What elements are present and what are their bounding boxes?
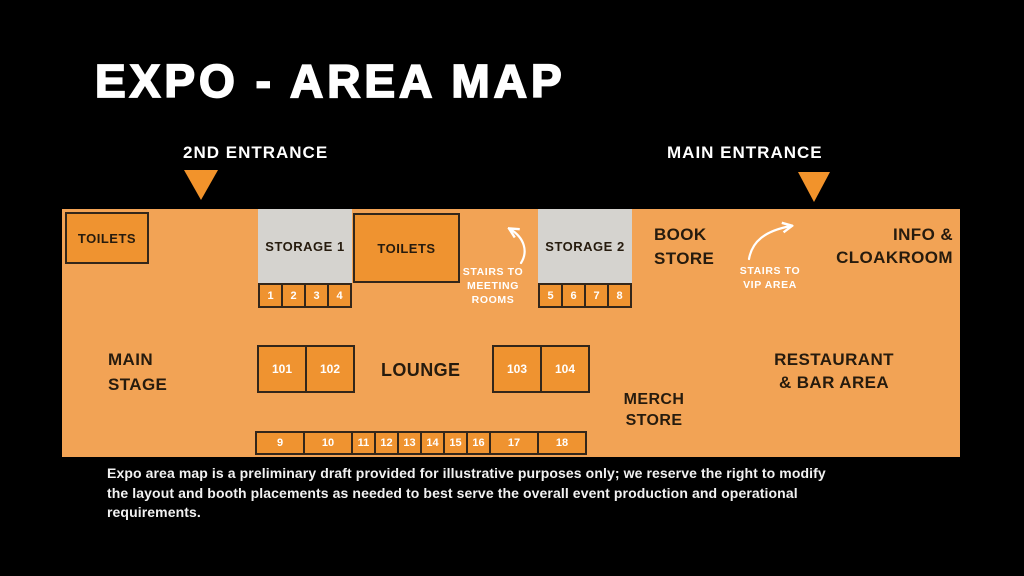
disclaimer-line: Expo area map is a preliminary draft pro…: [107, 464, 867, 484]
booth: 6: [561, 283, 586, 308]
main-entrance-arrow-icon: [798, 172, 830, 202]
booth: 10: [303, 431, 353, 455]
booth: 16: [466, 431, 491, 455]
booth: 104: [540, 345, 590, 393]
info-cloakroom-label: INFO & CLOAKROOM: [836, 223, 953, 269]
expo-floor-map: TOILETS STORAGE 1 TOILETS STORAGE 2 1234…: [62, 209, 960, 457]
booth: 101: [257, 345, 307, 393]
stairs-vip-arrow-icon: [749, 226, 791, 259]
book-store-label: BOOK STORE: [654, 223, 714, 271]
second-entrance-arrow-icon: [184, 170, 218, 200]
lounge-label: LOUNGE: [381, 358, 460, 382]
stairs-vip-label: STAIRS TO VIP AREA: [732, 264, 808, 292]
main-entrance-label: MAIN ENTRANCE: [667, 143, 823, 163]
booth: 4: [327, 283, 352, 308]
room-toilets-mid: TOILETS: [353, 213, 460, 283]
booth-row-101-102: 101102: [257, 345, 355, 393]
booth: 2: [281, 283, 306, 308]
second-entrance-label: 2ND ENTRANCE: [183, 143, 328, 163]
booth-row-1-4: 1234: [258, 283, 352, 308]
booth: 15: [443, 431, 468, 455]
booth: 17: [489, 431, 539, 455]
booth-row-103-104: 103104: [492, 345, 590, 393]
booth: 14: [420, 431, 445, 455]
booth: 1: [258, 283, 283, 308]
stairs-arrows-overlay: [62, 209, 960, 457]
booth: 3: [304, 283, 329, 308]
page-title: EXPO - AREA MAP: [95, 54, 566, 108]
merch-store-label: MERCH STORE: [617, 389, 691, 431]
booth-row-5-8: 5678: [538, 283, 632, 308]
disclaimer-line: requirements.: [107, 503, 867, 523]
booth-row-bottom: 9101112131415161718: [255, 431, 587, 455]
main-stage-label: MAIN STAGE: [108, 347, 167, 397]
restaurant-bar-label: RESTAURANT & BAR AREA: [759, 348, 909, 394]
booth: 9: [255, 431, 305, 455]
booth: 102: [305, 345, 355, 393]
booth: 7: [584, 283, 609, 308]
room-toilets-left: TOILETS: [65, 212, 149, 264]
stairs-meeting-arrow-icon: [510, 229, 525, 263]
booth: 5: [538, 283, 563, 308]
booth: 103: [492, 345, 542, 393]
booth: 12: [374, 431, 399, 455]
disclaimer-line: the layout and booth placements as neede…: [107, 484, 867, 504]
disclaimer-text: Expo area map is a preliminary draft pro…: [107, 464, 867, 523]
room-storage-2: STORAGE 2: [538, 209, 632, 283]
booth: 8: [607, 283, 632, 308]
room-storage-1: STORAGE 1: [258, 209, 352, 283]
stairs-meeting-label: STAIRS TO MEETING ROOMS: [460, 265, 526, 307]
booth: 13: [397, 431, 422, 455]
slide-background: { "title": "EXPO - AREA MAP", "entrances…: [0, 0, 1024, 576]
booth: 11: [351, 431, 376, 455]
booth: 18: [537, 431, 587, 455]
